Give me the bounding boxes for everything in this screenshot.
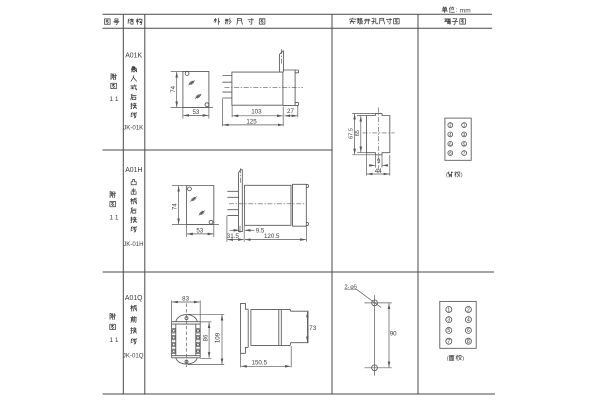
svg-text:44: 44 [375,168,382,175]
svg-text:): ) [461,172,463,178]
svg-text:2: 2 [467,307,470,313]
svg-text:27: 27 [287,108,294,115]
svg-text:1 1: 1 1 [110,96,119,103]
svg-text:(: ( [447,356,449,362]
svg-text:8: 8 [467,339,470,345]
svg-text:31.5: 31.5 [227,233,240,240]
svg-text:A01H: A01H [125,167,142,174]
svg-text::: : [456,7,458,14]
svg-text:5: 5 [447,328,450,334]
svg-text:mm: mm [460,7,471,14]
svg-text:120.5: 120.5 [264,233,280,240]
svg-text:90: 90 [390,331,397,338]
svg-text:6: 6 [467,328,470,334]
svg-text:103: 103 [251,109,262,116]
svg-text:JK-01Q: JK-01Q [123,353,144,360]
svg-text:(: ( [446,172,448,178]
svg-text:7: 7 [447,339,450,345]
svg-text:74: 74 [170,85,177,92]
svg-text:1 1: 1 1 [110,337,119,344]
svg-text:1: 1 [447,307,450,313]
svg-text:1 1: 1 1 [110,215,119,222]
svg-text:53: 53 [192,109,199,116]
svg-text:86: 86 [202,334,209,341]
svg-text:53: 53 [196,228,203,235]
svg-text:): ) [462,356,464,362]
svg-text:67.5: 67.5 [349,128,355,139]
svg-text:3: 3 [447,317,450,323]
svg-text:A01K: A01K [125,53,142,60]
svg-text:125: 125 [246,118,257,125]
svg-text:4: 4 [467,317,470,323]
svg-text:JK-01K: JK-01K [123,125,143,132]
svg-text:A01Q: A01Q [125,295,143,302]
svg-text:9: 9 [377,158,381,165]
svg-text:73: 73 [309,325,316,332]
svg-text:150.5: 150.5 [252,359,268,366]
svg-text:109: 109 [214,332,221,343]
svg-text:65: 65 [355,130,361,136]
svg-text:JK-01H: JK-01H [123,241,143,248]
svg-text:83: 83 [182,296,189,303]
svg-text:74: 74 [172,203,179,210]
